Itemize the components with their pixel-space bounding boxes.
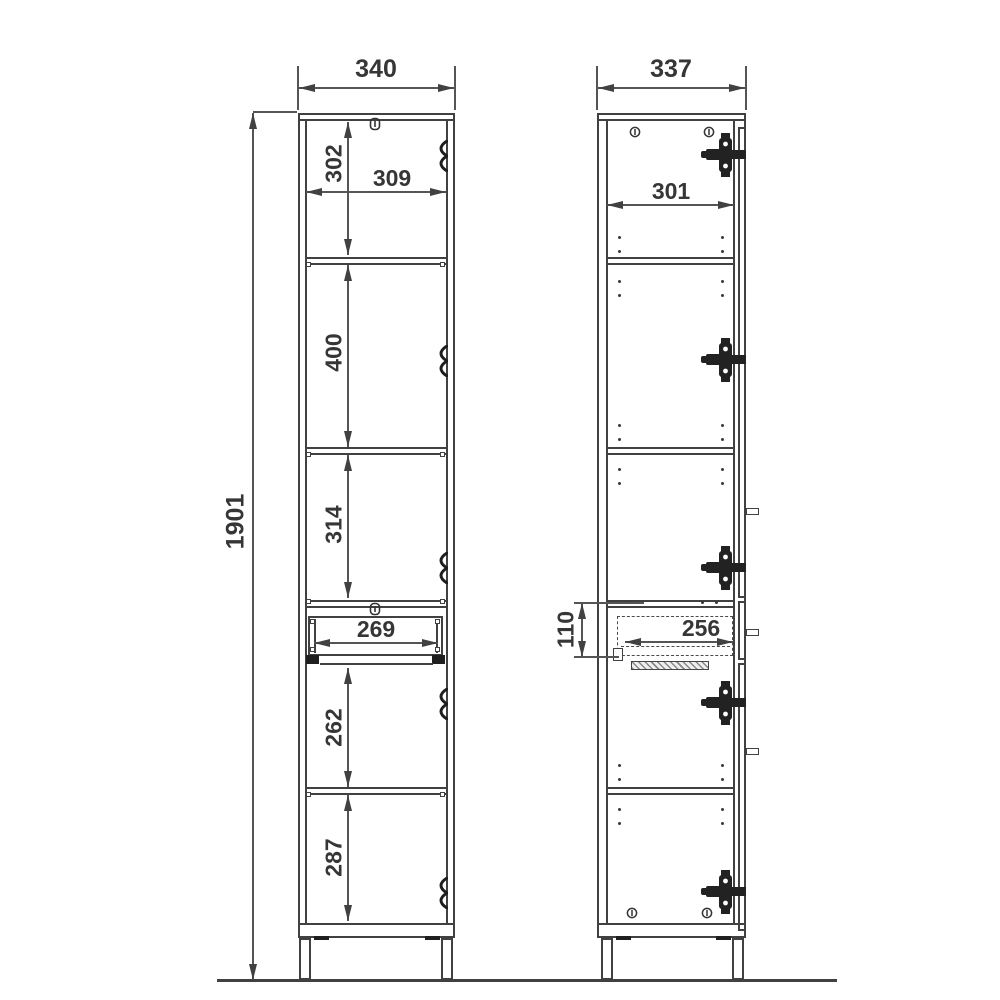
drawer-slide-bracket-icon: [432, 655, 445, 664]
dimension-line: [314, 642, 438, 644]
front-section3-height-label: 314: [323, 490, 346, 560]
front-drawer-width-label: 269: [341, 618, 411, 641]
side-front-edge-line: [733, 121, 735, 923]
arrowhead-icon: [314, 639, 330, 647]
side-shelf1-line: [607, 263, 733, 265]
shelf-pin-hole: [721, 280, 724, 283]
arrowhead-icon: [344, 265, 352, 281]
shelf-pin-hole: [618, 438, 621, 441]
shelf-pin-hole: [618, 808, 621, 811]
arrowhead-icon: [344, 582, 352, 598]
front-shelf2-line: [306, 453, 446, 455]
side-shelf4-line: [607, 787, 733, 789]
dimension-line: [299, 87, 454, 89]
shelf-pin-hole: [721, 778, 724, 781]
shelf-screw-hole: [715, 601, 718, 604]
handle-peg-icon: [746, 508, 759, 515]
arrowhead-icon: [306, 188, 322, 196]
dimension-line: [347, 668, 349, 787]
shelf-pin-hole: [721, 424, 724, 427]
front-shelf4-line: [306, 793, 446, 795]
cam-screw-icon: [369, 117, 381, 136]
side-door-edge-line: [738, 929, 745, 931]
shelf-pin-hole: [721, 250, 724, 253]
foot-glide-icon: [425, 936, 440, 940]
handle-peg-icon: [746, 629, 759, 636]
hinge-icon: [700, 338, 748, 387]
shelf-support-icon: [440, 792, 445, 797]
shelf-pin-hole: [721, 764, 724, 767]
front-shelf4-line: [306, 787, 446, 789]
drawer-corner-screw-icon: [310, 647, 315, 652]
front-left-wall-inner-line: [305, 121, 307, 923]
front-section1-height-label: 302: [323, 129, 346, 199]
handle-peg-icon: [746, 748, 759, 755]
shelf-pin-hole: [721, 822, 724, 825]
shelf-pin-hole: [721, 236, 724, 239]
side-door-edge-line: [738, 127, 745, 129]
side-door-edge-line: [738, 596, 745, 598]
front-bottom-panel-line: [300, 923, 453, 925]
arrowhead-icon: [607, 201, 623, 209]
shelf-pin-hole: [721, 294, 724, 297]
side-shelf2-line: [607, 453, 733, 455]
front-shelf1-line: [306, 263, 446, 265]
front-drawer-bottom-line: [320, 663, 433, 665]
shelf-pin-hole: [721, 438, 724, 441]
side-bottom-panel-line: [599, 923, 744, 925]
hinge-icon: [700, 546, 748, 595]
arrowhead-icon: [578, 641, 586, 657]
side-drawer-front-line: [738, 601, 740, 659]
drawer-slide-bracket-icon: [613, 648, 623, 661]
drawer-slide-hatch-icon: [631, 661, 709, 670]
front-section5-height-label: 287: [323, 823, 346, 893]
arrowhead-icon: [344, 795, 352, 811]
arrowhead-icon: [344, 668, 352, 684]
front-right-wall-inner-line: [446, 121, 448, 923]
dimension-line: [347, 265, 349, 447]
ground-line: [217, 979, 837, 982]
dimension-line: [347, 795, 349, 921]
hinge-icon: [437, 877, 448, 914]
extension-line: [454, 66, 456, 110]
shelf-support-icon: [306, 262, 311, 267]
front-right-leg: [441, 938, 453, 980]
arrowhead-icon: [344, 431, 352, 447]
arrowhead-icon: [625, 638, 641, 646]
side-back-wall-inner-line: [606, 121, 608, 923]
arrowhead-icon: [344, 455, 352, 471]
arrowhead-icon: [438, 84, 454, 92]
side-drawer-depth-label: 256: [666, 617, 736, 640]
side-door-edge-line: [738, 601, 745, 603]
hinge-icon: [437, 552, 448, 589]
technical-drawing-canvas: 340 1901 302 309 400 314 269: [0, 0, 1000, 1000]
front-section2-height-label: 400: [323, 318, 346, 388]
cam-lock-icon: [629, 125, 641, 143]
hinge-icon: [437, 345, 448, 382]
shelf-pin-hole: [618, 250, 621, 253]
arrowhead-icon: [718, 201, 734, 209]
dimension-line: [252, 113, 254, 980]
hinge-icon: [437, 688, 448, 725]
foot-glide-icon: [616, 936, 631, 940]
arrowhead-icon: [299, 84, 315, 92]
arrowhead-icon: [729, 84, 745, 92]
drawer-corner-screw-icon: [435, 619, 440, 624]
side-back-leg: [601, 938, 613, 980]
arrowhead-icon: [249, 113, 257, 129]
shelf-pin-hole: [618, 294, 621, 297]
side-top-panel-line: [599, 119, 744, 121]
hinge-icon: [700, 870, 748, 919]
hinge-icon: [700, 133, 748, 182]
foot-glide-icon: [314, 936, 329, 940]
side-front-leg: [732, 938, 744, 980]
dimension-line: [306, 191, 446, 193]
shelf-support-icon: [306, 792, 311, 797]
foot-glide-icon: [716, 936, 731, 940]
shelf-pin-hole: [721, 808, 724, 811]
front-overall-height-label: 1901: [224, 487, 249, 557]
side-drawer-front-height-label: 110: [555, 595, 578, 665]
shelf-screw-hole: [701, 601, 704, 604]
arrowhead-icon: [344, 239, 352, 255]
front-shelf2-line: [306, 447, 446, 449]
front-shelf1-line: [306, 257, 446, 259]
front-inner-width-label: 309: [357, 167, 427, 190]
arrowhead-icon: [578, 603, 586, 619]
front-overall-width-label: 340: [341, 57, 411, 82]
side-shelf1-line: [607, 257, 733, 259]
hinge-icon: [700, 681, 748, 730]
side-door-edge-line: [738, 663, 745, 665]
drawer-corner-screw-icon: [435, 647, 440, 652]
shelf-pin-hole: [721, 468, 724, 471]
dimension-line: [347, 455, 349, 598]
dimension-line: [347, 122, 349, 255]
arrowhead-icon: [430, 188, 446, 196]
side-inner-depth-label: 301: [636, 180, 706, 203]
side-door-edge-line: [738, 658, 745, 660]
shelf-pin-hole: [618, 468, 621, 471]
shelf-support-icon: [440, 452, 445, 457]
shelf-support-icon: [440, 599, 445, 604]
front-left-leg: [299, 938, 311, 980]
arrowhead-icon: [249, 964, 257, 980]
shelf-pin-hole: [618, 280, 621, 283]
shelf-pin-hole: [618, 764, 621, 767]
shelf-pin-hole: [618, 482, 621, 485]
side-shelf4-line: [607, 793, 733, 795]
shelf-support-icon: [306, 599, 311, 604]
dimension-line: [598, 87, 745, 89]
arrowhead-icon: [598, 84, 614, 92]
dimension-line: [607, 204, 734, 206]
drawer-slide-bracket-icon: [306, 655, 319, 664]
arrowhead-icon: [344, 905, 352, 921]
cam-lock-icon: [626, 906, 638, 924]
front-section4-height-label: 262: [323, 693, 346, 763]
shelf-pin-hole: [618, 778, 621, 781]
shelf-support-icon: [306, 452, 311, 457]
shelf-pin-hole: [618, 822, 621, 825]
shelf-support-icon: [440, 262, 445, 267]
side-shelf2-line: [607, 447, 733, 449]
extension-line: [253, 111, 297, 113]
hinge-icon: [437, 140, 448, 177]
side-overall-depth-label: 337: [636, 57, 706, 82]
side-drawer-bottom-hidden-line: [621, 646, 730, 647]
shelf-pin-hole: [618, 236, 621, 239]
extension-line: [745, 66, 747, 110]
shelf-pin-hole: [618, 424, 621, 427]
arrowhead-icon: [422, 639, 438, 647]
shelf-pin-hole: [721, 482, 724, 485]
drawer-corner-screw-icon: [310, 619, 315, 624]
arrowhead-icon: [344, 771, 352, 787]
side-fixed-shelf-line: [607, 606, 733, 608]
